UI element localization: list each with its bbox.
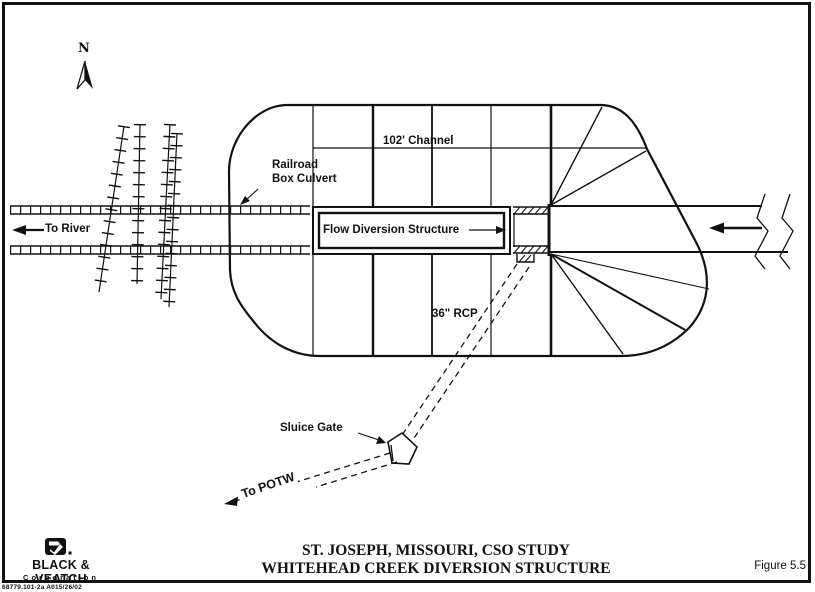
rcp-pipe-dashed [394,264,529,453]
figure-number: Figure 5.5 [724,560,806,572]
transition-fan-lines [551,107,709,354]
to-river-label: To River [45,222,90,236]
north-label: N [78,42,90,56]
drawing-title-line2: WHITEHEAD CREEK DIVERSION STRUCTURE [166,560,706,578]
sluice-gate-label: Sluice Gate [280,421,343,435]
channel-label: 102' Channel [383,134,453,148]
sluice-leader-arrow [358,433,386,444]
fds-leader-arrow [469,226,506,234]
drawing-title-line1: ST. JOSEPH, MISSOURI, CSO STUDY [166,542,706,560]
sluice-gate-symbol [388,433,417,464]
railroad-culvert-label-line1: Railroad [272,158,337,172]
rcp-label: 36" RCP [432,307,478,321]
to-river-arrow-icon [12,225,44,235]
culvert-leader-arrow [240,189,258,205]
document-number: 68779.101-2a A015/26/02 [2,584,82,591]
gate-section [513,204,549,262]
diagram-canvas [0,0,815,592]
railroad-culvert-label: Railroad Box Culvert [272,158,337,186]
north-arrow-icon [77,61,93,89]
railroad-tracks-icon [99,124,177,307]
break-symbol [755,194,793,269]
flow-arrow-icon [709,223,762,234]
drawing-title: ST. JOSEPH, MISSOURI, CSO STUDY WHITEHEA… [166,542,706,577]
railroad-culvert-label-line2: Box Culvert [272,172,337,186]
company-subtitle: Corporation [5,573,117,582]
flow-diversion-label: Flow Diversion Structure [323,223,459,237]
bv-logo-icon [45,538,72,555]
